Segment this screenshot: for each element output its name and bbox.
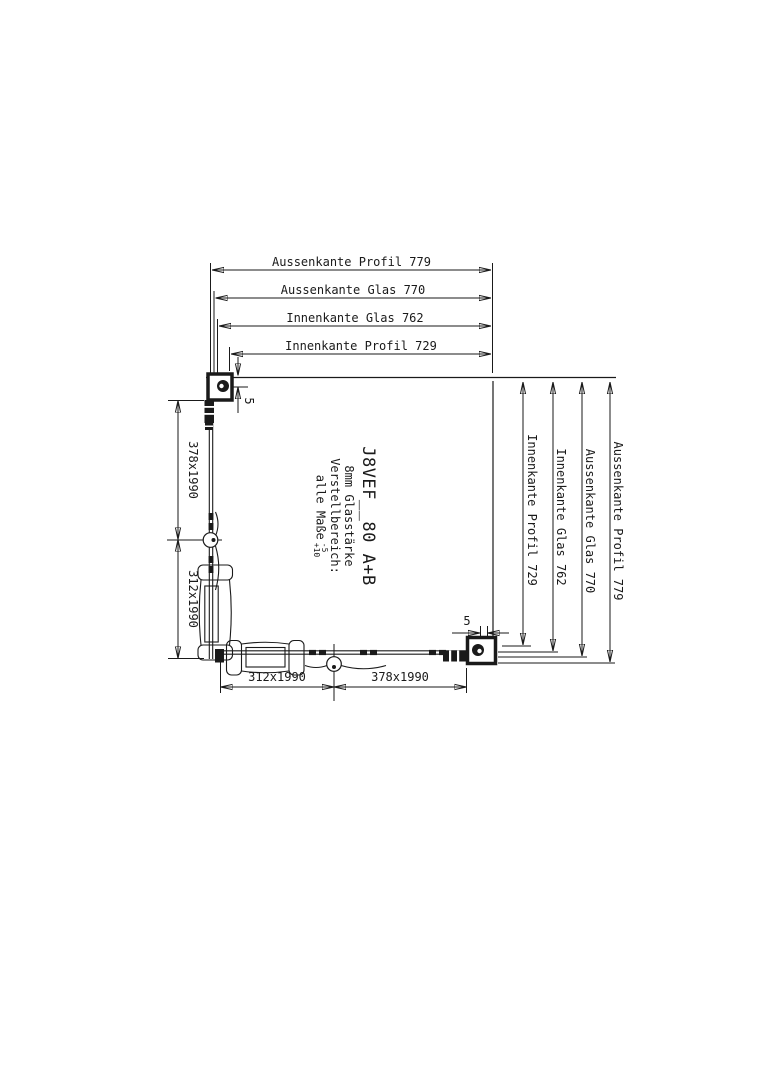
- handle-knob-left: [203, 533, 218, 548]
- tolerance-plus: +10: [312, 543, 320, 557]
- dim-label-innenkante-profil-top: Innenkante Profil 729: [285, 340, 437, 352]
- dim-label-innenkante-profil-right: Innenkante Profil 729: [526, 434, 538, 586]
- wall-profile-top-left: [205, 374, 233, 430]
- adjustment-range-label: Verstellbereich:: [328, 421, 342, 611]
- dim-label-aussenkante-profil-top: Aussenkante Profil 779: [272, 256, 431, 268]
- handle-knob-bottom: [327, 657, 342, 672]
- corner-connector: [215, 649, 224, 663]
- drawing-canvas: [0, 0, 763, 1080]
- glass-thickness-note: 8mm Glasstärke: [342, 421, 356, 611]
- wall-profile-bottom-right: [443, 638, 496, 664]
- dim-label-aussenkante-glas-top: Aussenkante Glas 770: [281, 284, 426, 296]
- title-block: J8VEF__80 A+B 8mm Glasstärke Verstellber…: [312, 421, 380, 611]
- dim-label-innenkante-glas-top: Innenkante Glas 762: [286, 312, 423, 324]
- dim-label-door-378-bottom: 378x1990: [371, 671, 429, 683]
- dim-label-door-312-left: 312x1990: [187, 570, 199, 628]
- model-number: J8VEF__80 A+B: [356, 421, 380, 611]
- dim-label-aussenkante-glas-right: Aussenkante Glas 770: [584, 449, 596, 594]
- gap-label-bottom-right: 5: [463, 615, 470, 627]
- dim-label-door-312-bottom: 312x1990: [248, 671, 306, 683]
- door-panel-left: [198, 399, 233, 660]
- technical-drawing-page: Aussenkante Profil 779 Aussenkante Glas …: [0, 0, 763, 1080]
- dim-label-door-378-left: 378x1990: [187, 441, 199, 499]
- tolerance-text: alle Maße: [314, 475, 328, 540]
- tolerance-note: alle Maße-5+10: [312, 421, 328, 611]
- dim-label-aussenkante-profil-right: Aussenkante Profil 779: [612, 442, 624, 601]
- dim-label-innenkante-glas-right: Innenkante Glas 762: [555, 448, 567, 585]
- tolerance-minus: -5: [320, 543, 328, 557]
- gap-label-top-left: 5: [243, 397, 255, 404]
